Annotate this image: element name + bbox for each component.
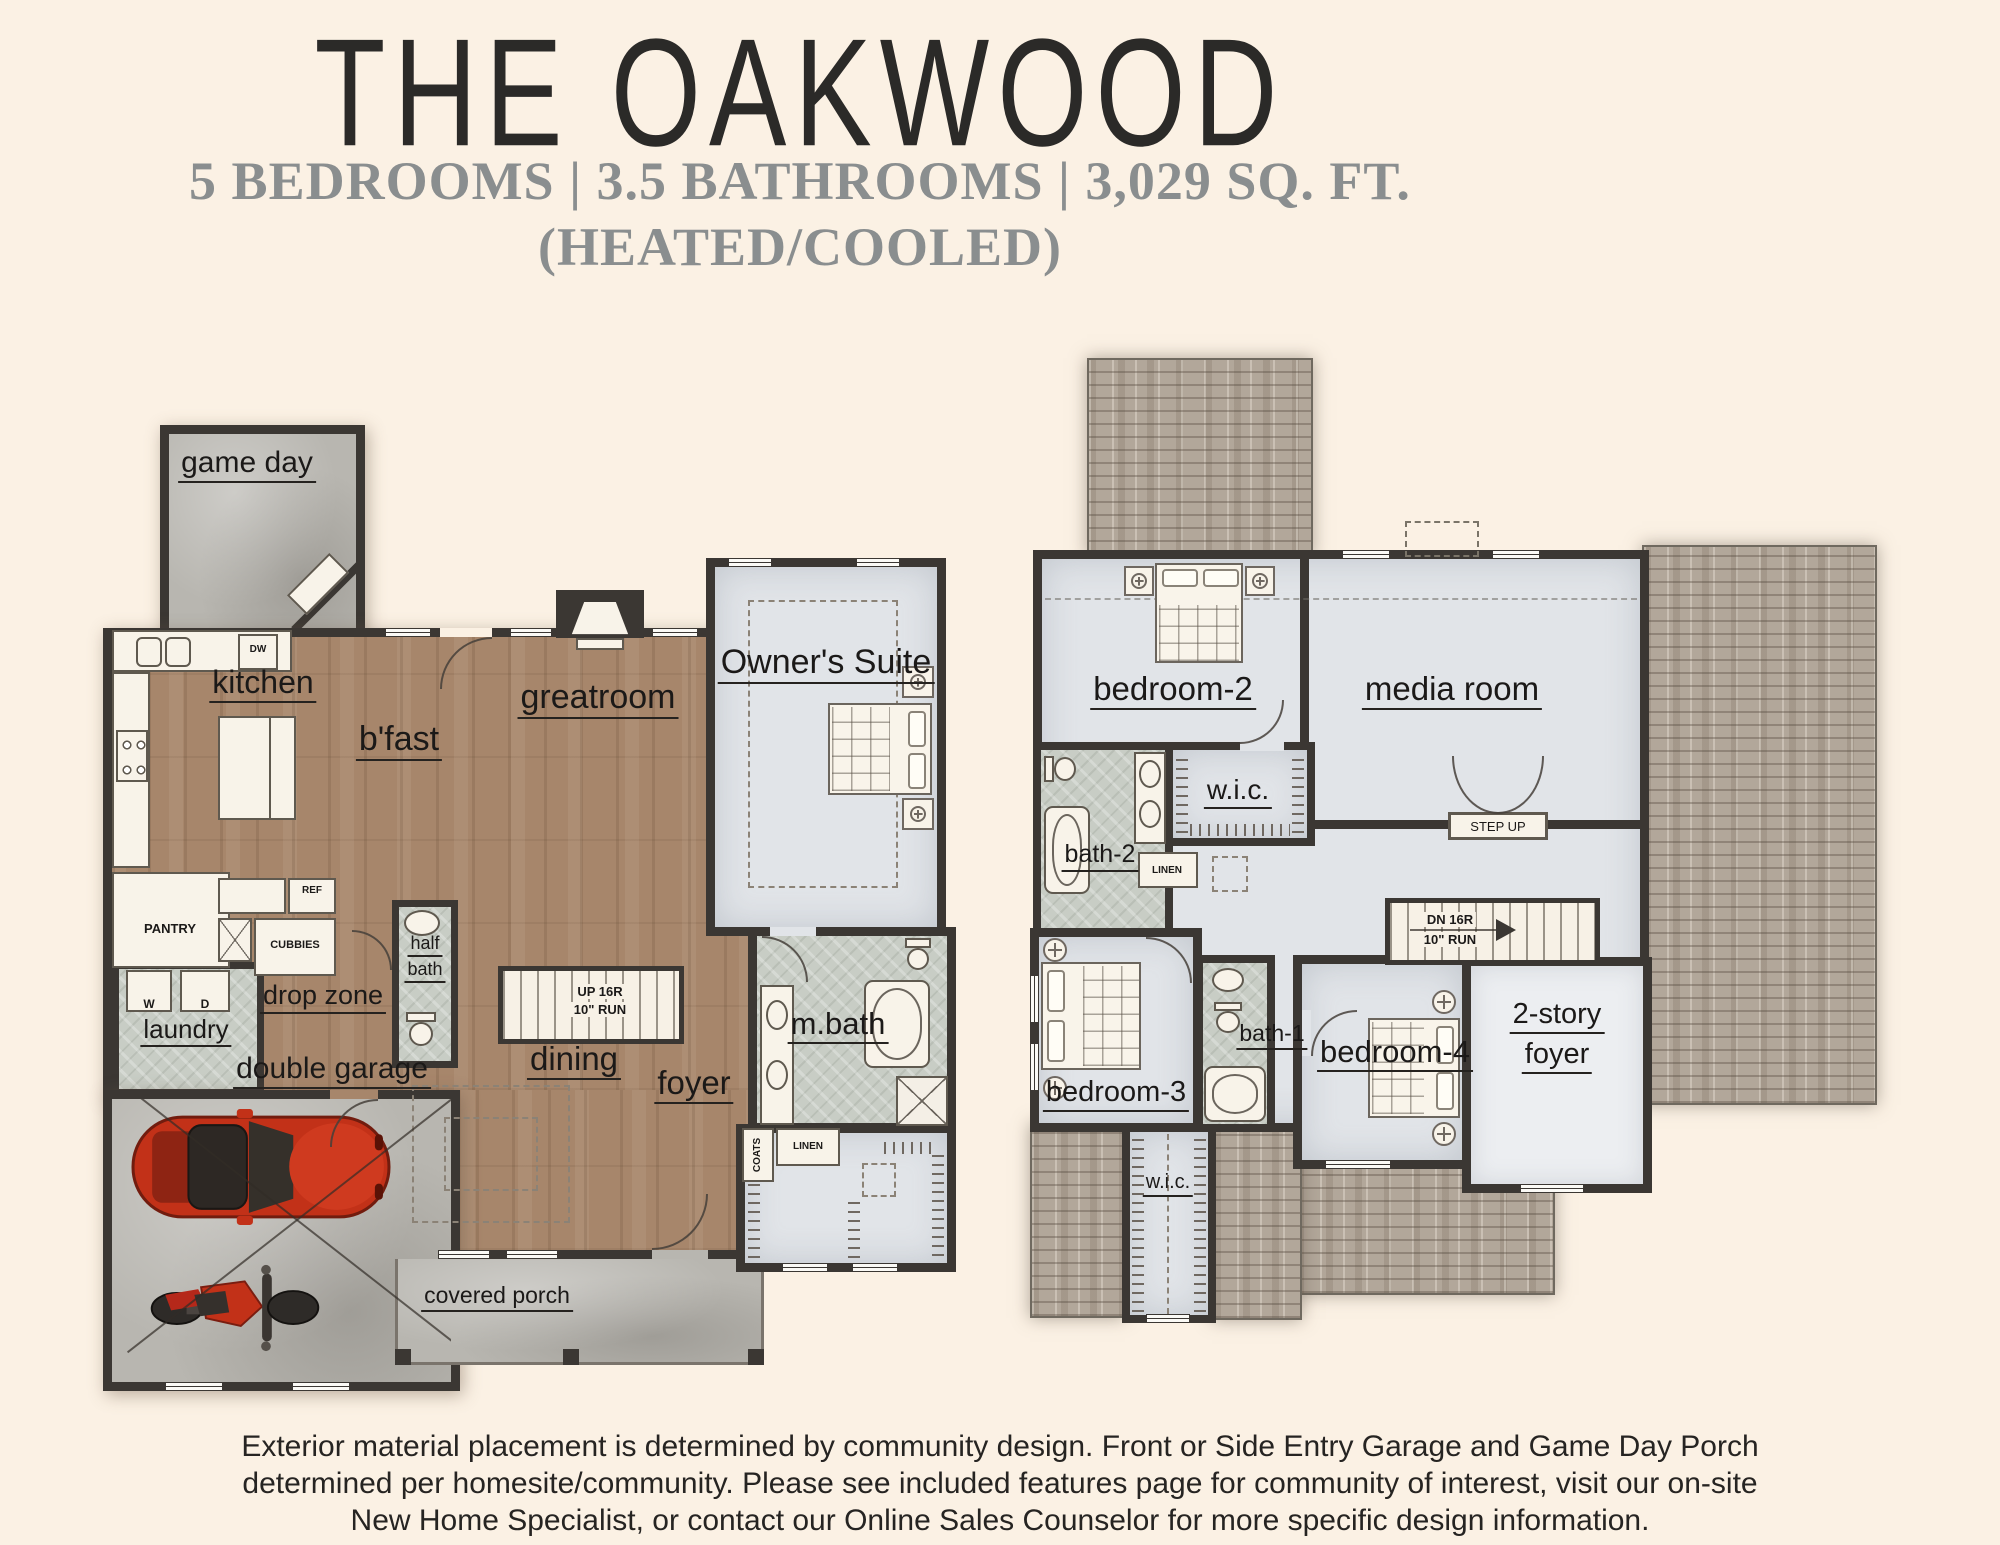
pantry-label: PANTRY xyxy=(144,922,196,935)
disclaimer-line1: Exterior material placement is determine… xyxy=(0,1428,2000,1465)
kitchen-island xyxy=(218,716,296,820)
label-bedroom4: bedroom-4 xyxy=(1317,1036,1473,1072)
pillow xyxy=(1162,569,1198,587)
nightstand xyxy=(1124,566,1154,596)
window xyxy=(852,1263,898,1272)
linen-label: LINEN xyxy=(793,1142,823,1152)
bath1-sink xyxy=(1212,968,1244,992)
toilet-bowl xyxy=(409,1022,433,1046)
closet-dash xyxy=(862,1163,896,1197)
label-half-bath-2: bath xyxy=(404,960,445,983)
pillow xyxy=(908,753,926,789)
roof-right xyxy=(1642,545,1877,1105)
roof-wic-left xyxy=(1030,1123,1125,1318)
floorplan-sheet: { "header": { "title": "THE OAKWOOD", "s… xyxy=(0,0,2000,1545)
label-kitchen: kitchen xyxy=(209,666,316,703)
fireplace-hearth xyxy=(576,638,624,650)
toilet-tank xyxy=(406,1012,436,1022)
bed-blanket xyxy=(832,707,890,791)
bed xyxy=(1155,563,1243,663)
porch-post xyxy=(748,1349,764,1365)
disclaimer: Exterior material placement is determine… xyxy=(0,1428,2000,1539)
pantry-corridor xyxy=(112,872,230,968)
mbath-sink xyxy=(766,1060,788,1090)
dishwasher-label: DW xyxy=(250,645,267,655)
nightstand xyxy=(1245,566,1275,596)
label-bath2: bath-2 xyxy=(1062,842,1139,872)
closet-hangers xyxy=(1176,753,1188,833)
window xyxy=(510,628,552,637)
closet-hangers xyxy=(748,1180,760,1258)
label-linen-upper: LINEN xyxy=(1152,866,1182,876)
label-media-room: media room xyxy=(1362,672,1542,710)
window xyxy=(1030,1043,1039,1091)
motorcycle xyxy=(145,1262,325,1354)
stairs-up-label1: UP 16R xyxy=(574,984,625,999)
plant xyxy=(1432,990,1456,1014)
closet-hangers xyxy=(1132,1134,1144,1312)
pillow xyxy=(1047,970,1065,1012)
cubbies-label: CUBBIES xyxy=(270,940,320,951)
garage-door xyxy=(292,1382,350,1391)
stairs-arrow xyxy=(1496,919,1516,941)
stairs-down-label1: DN 16R xyxy=(1424,912,1476,927)
closet-hangers xyxy=(848,1200,860,1258)
closet-hangers xyxy=(1190,824,1290,836)
porch-post xyxy=(395,1349,411,1365)
label-mbath: m.bath xyxy=(788,1008,889,1044)
toilet-tank xyxy=(1214,1002,1242,1011)
closet-hangers xyxy=(1292,753,1304,833)
suite-door-opening xyxy=(770,927,816,936)
window xyxy=(1492,550,1540,559)
dining-ceiling-dash-inner xyxy=(444,1117,538,1191)
pillow xyxy=(1047,1020,1065,1062)
closet-hangers xyxy=(884,1142,932,1154)
bath1-tub xyxy=(1204,1066,1266,1122)
plant xyxy=(1432,1122,1456,1146)
refrigerator xyxy=(288,878,336,914)
pillow xyxy=(1203,569,1239,587)
label-step-up: STEP UP xyxy=(1470,820,1525,833)
window xyxy=(1146,1314,1190,1323)
room-covered-porch xyxy=(395,1259,764,1365)
greatroom-fireplace xyxy=(556,590,644,638)
plant xyxy=(1252,573,1268,589)
refrigerator-label: REF xyxy=(302,886,322,896)
cooktop xyxy=(116,730,148,782)
label-two-story-1: 2-story xyxy=(1510,1000,1605,1034)
window xyxy=(728,558,772,567)
ceiling-break-dash xyxy=(1045,598,1637,600)
label-half-bath-1: half xyxy=(407,934,442,957)
stairs-arrow-line xyxy=(1410,929,1496,931)
closet-hangers xyxy=(1194,1134,1206,1312)
pillow xyxy=(1436,1072,1454,1110)
porch-post xyxy=(563,1349,579,1365)
label-game-day: game day xyxy=(178,448,316,483)
window xyxy=(652,628,698,637)
label-drop-zone: drop zone xyxy=(260,982,386,1014)
label-bedroom2: bedroom-2 xyxy=(1090,672,1256,710)
mbath-shower xyxy=(896,1076,948,1126)
pillow xyxy=(908,711,926,747)
label-greatroom: greatroom xyxy=(518,680,679,719)
front-door-opening xyxy=(652,1250,708,1259)
label-foyer: foyer xyxy=(654,1066,733,1104)
wic-dash xyxy=(1167,1134,1169,1314)
toilet-tank xyxy=(905,938,931,948)
window xyxy=(1342,550,1390,559)
subtitle-specs: 5 BEDROOMS | 3.5 BATHROOMS | 3,029 SQ. F… xyxy=(40,150,1560,212)
bath2-sink xyxy=(1139,760,1161,788)
coats-label: COATS xyxy=(753,1138,763,1172)
plant xyxy=(1131,573,1147,589)
label-bfast: b'fast xyxy=(356,722,442,761)
window xyxy=(385,628,431,637)
plant xyxy=(910,806,926,822)
stairs-up-label2: 10" RUN xyxy=(571,1002,629,1017)
label-two-story-2: foyer xyxy=(1522,1040,1592,1074)
plant xyxy=(1043,938,1067,962)
window xyxy=(782,1263,828,1272)
label-bedroom3: bedroom-3 xyxy=(1043,1078,1189,1112)
label-bath1: bath-1 xyxy=(1236,1022,1307,1050)
toilet-bowl xyxy=(907,948,929,970)
label-wic-lower: w.i.c. xyxy=(1143,1172,1193,1197)
window xyxy=(506,1250,558,1259)
washer-label: W xyxy=(143,998,154,1010)
label-dining: dining xyxy=(527,1042,621,1080)
hall-dash xyxy=(1212,856,1248,892)
bath2-sink xyxy=(1139,800,1161,828)
label-wic-upper: w.i.c. xyxy=(1204,776,1272,809)
roof-top xyxy=(1087,358,1313,557)
closet-hangers xyxy=(932,1150,944,1256)
toilet-bowl xyxy=(1054,757,1076,781)
tub-basin xyxy=(1212,1074,1258,1114)
window xyxy=(1325,1160,1391,1169)
roof-wic-right xyxy=(1212,1123,1302,1320)
garage-entry-opening xyxy=(330,1090,378,1099)
window xyxy=(1030,975,1039,1023)
bed-blanket xyxy=(1083,966,1139,1066)
door-opening xyxy=(440,628,492,637)
subtitle-heated-cooled: (HEATED/COOLED) xyxy=(40,216,1560,278)
kitchen-sink-basin xyxy=(165,637,191,667)
disclaimer-line3: New Home Specialist, or contact our Onli… xyxy=(0,1502,2000,1539)
disclaimer-line2: determined per homesite/community. Pleas… xyxy=(0,1465,2000,1502)
stairs-down-label2: 10" RUN xyxy=(1421,932,1479,947)
mud-cabinet xyxy=(218,878,286,914)
room-two-story-foyer xyxy=(1462,957,1652,1193)
window xyxy=(438,1250,490,1259)
garage-door xyxy=(165,1382,223,1391)
label-laundry: laundry xyxy=(140,1016,231,1047)
window xyxy=(1520,1184,1584,1193)
label-covered-porch: covered porch xyxy=(421,1284,573,1312)
attic-dash xyxy=(1405,521,1479,557)
stairs-down xyxy=(1385,898,1600,965)
kitchen-sink-basin xyxy=(136,637,162,667)
mbath-sink xyxy=(766,1000,788,1030)
toilet-tank xyxy=(1044,756,1054,782)
label-owners-suite: Owner's Suite xyxy=(718,645,935,684)
label-double-garage: double garage xyxy=(233,1054,431,1089)
dryer-label: D xyxy=(201,998,210,1010)
window xyxy=(856,558,900,567)
fireplace-insert xyxy=(556,590,644,638)
bed-blanket xyxy=(1159,605,1239,661)
bench-seat xyxy=(218,918,252,962)
owners-bed xyxy=(828,703,932,795)
bed xyxy=(1041,962,1141,1070)
nightstand xyxy=(902,798,934,830)
